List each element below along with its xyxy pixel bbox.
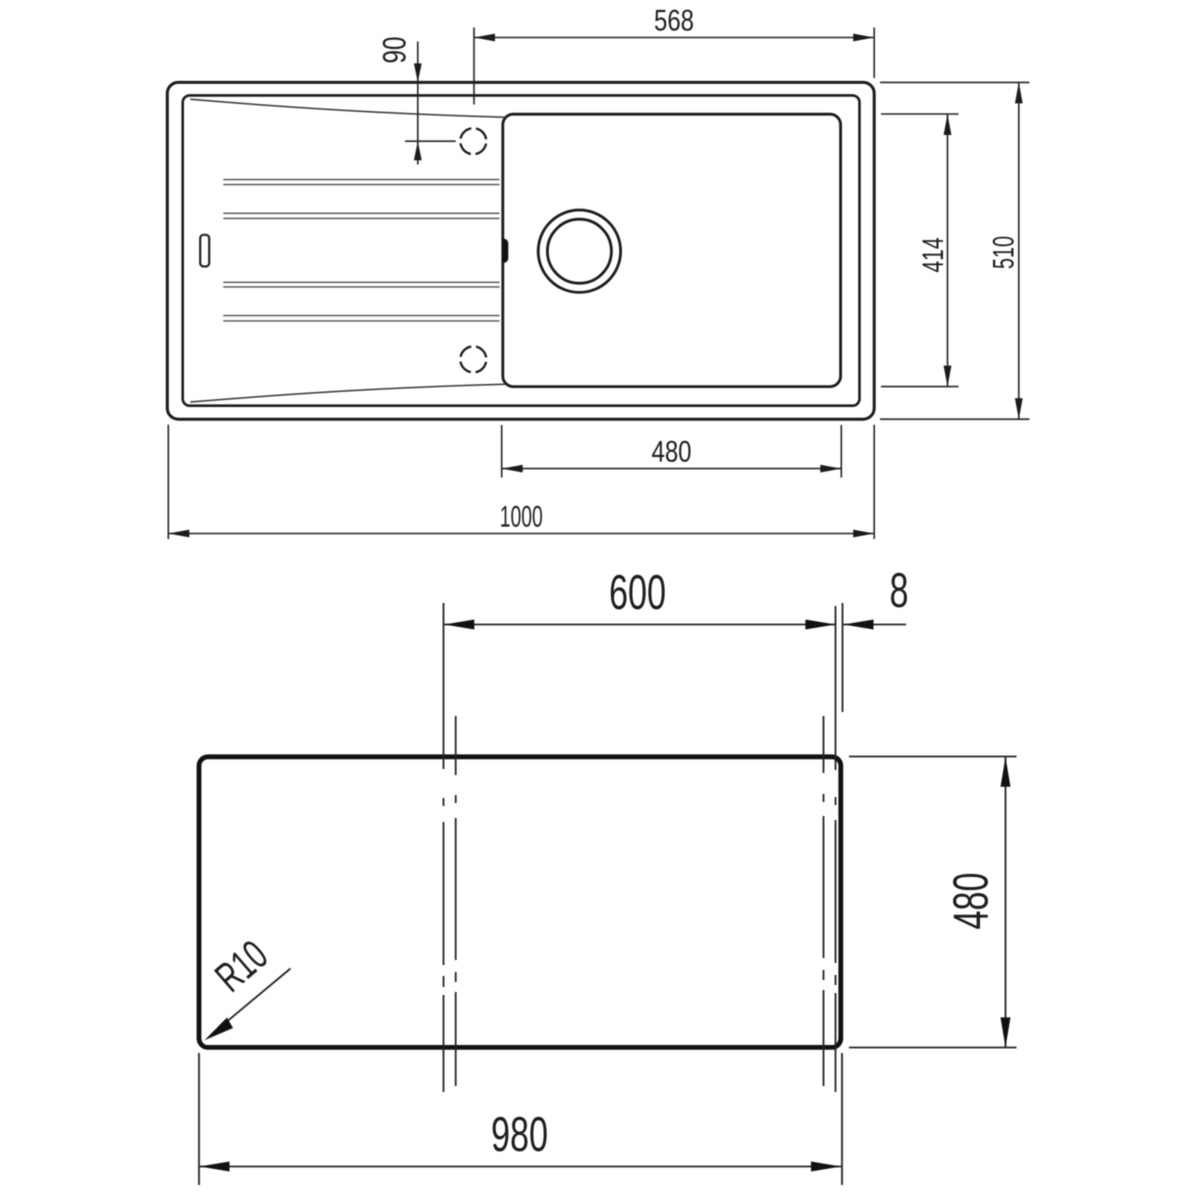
svg-text:510: 510 <box>988 236 1021 269</box>
svg-text:480: 480 <box>945 873 999 930</box>
svg-text:600: 600 <box>609 566 666 620</box>
svg-text:8: 8 <box>889 564 908 618</box>
svg-text:414: 414 <box>917 238 950 273</box>
svg-text:568: 568 <box>654 4 694 37</box>
svg-text:980: 980 <box>491 1108 548 1162</box>
svg-text:90: 90 <box>377 37 413 64</box>
svg-text:1000: 1000 <box>500 501 543 534</box>
svg-text:480: 480 <box>651 436 691 469</box>
